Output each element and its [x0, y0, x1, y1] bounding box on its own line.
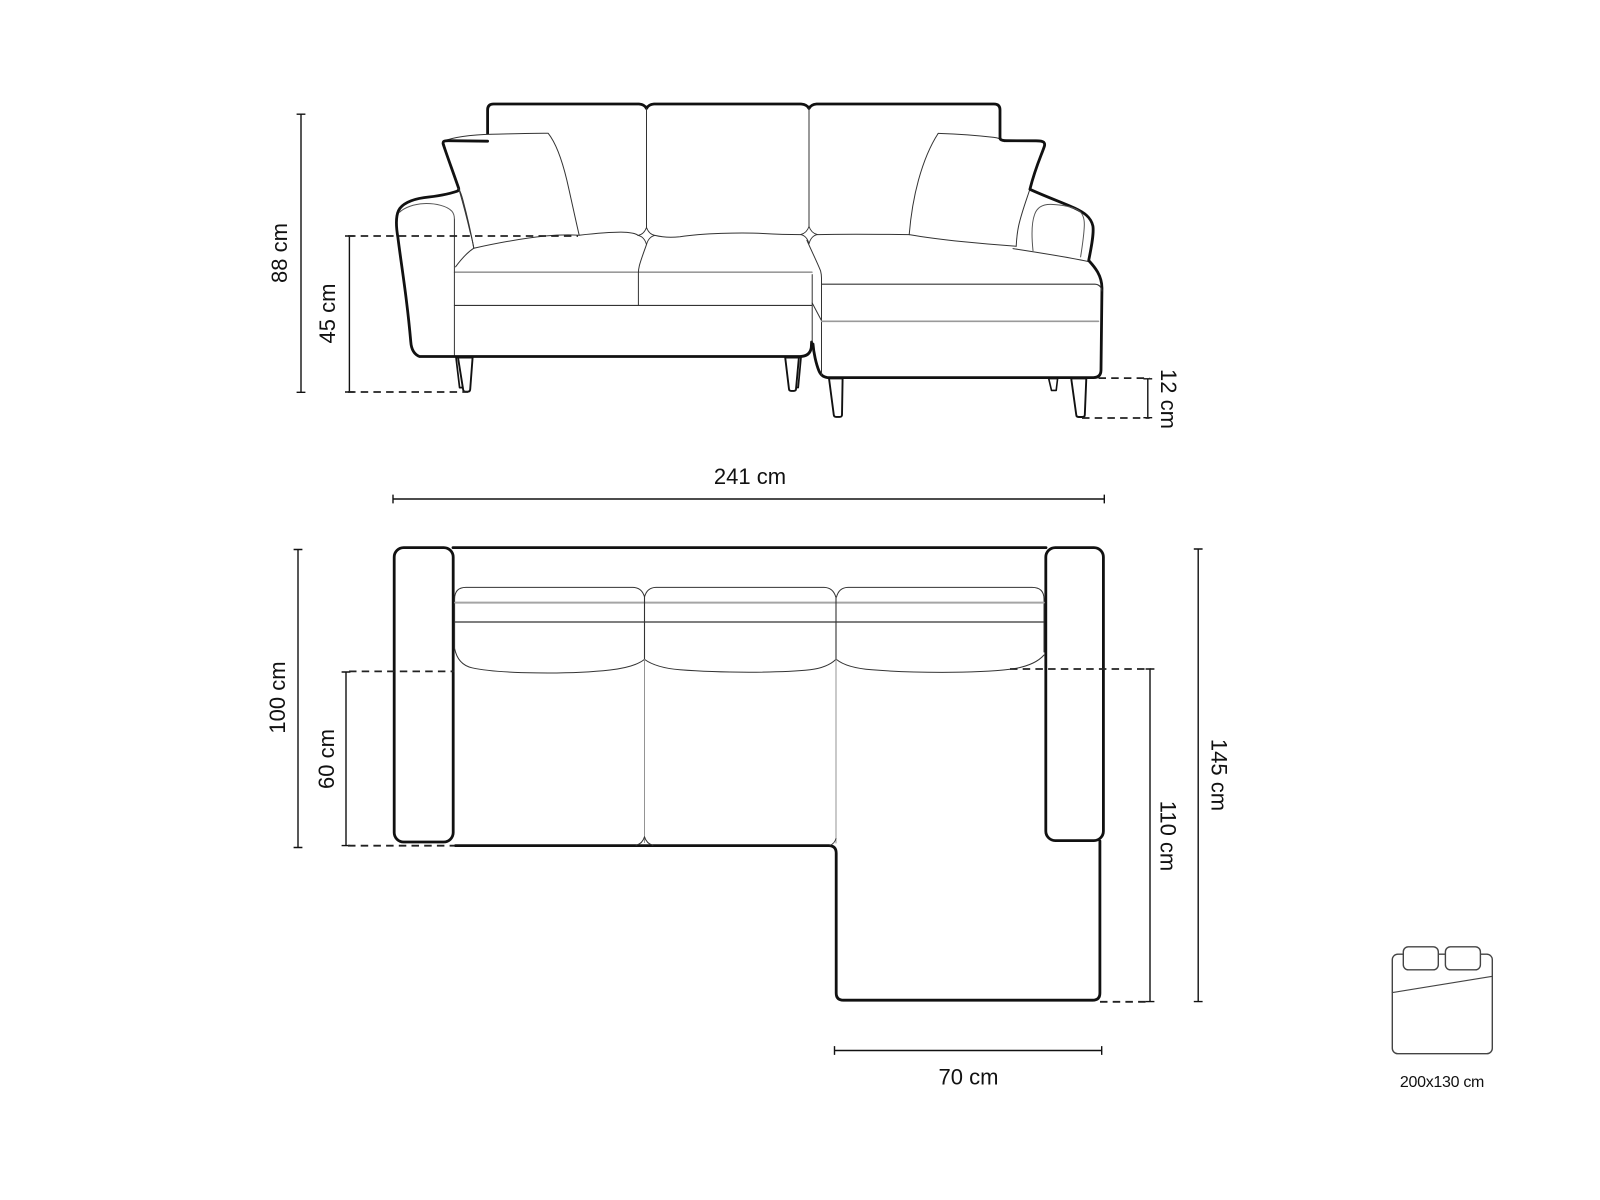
svg-text:241 cm: 241 cm — [714, 464, 786, 489]
svg-text:60 cm: 60 cm — [314, 729, 339, 789]
svg-text:200x130 cm: 200x130 cm — [1400, 1074, 1484, 1091]
svg-text:70 cm: 70 cm — [939, 1065, 999, 1090]
svg-text:145 cm: 145 cm — [1207, 739, 1232, 811]
svg-text:110 cm: 110 cm — [1156, 801, 1181, 872]
svg-text:100 cm: 100 cm — [265, 661, 290, 733]
svg-text:88 cm: 88 cm — [267, 223, 292, 283]
svg-text:12 cm: 12 cm — [1156, 369, 1181, 429]
svg-text:45 cm: 45 cm — [315, 284, 340, 344]
